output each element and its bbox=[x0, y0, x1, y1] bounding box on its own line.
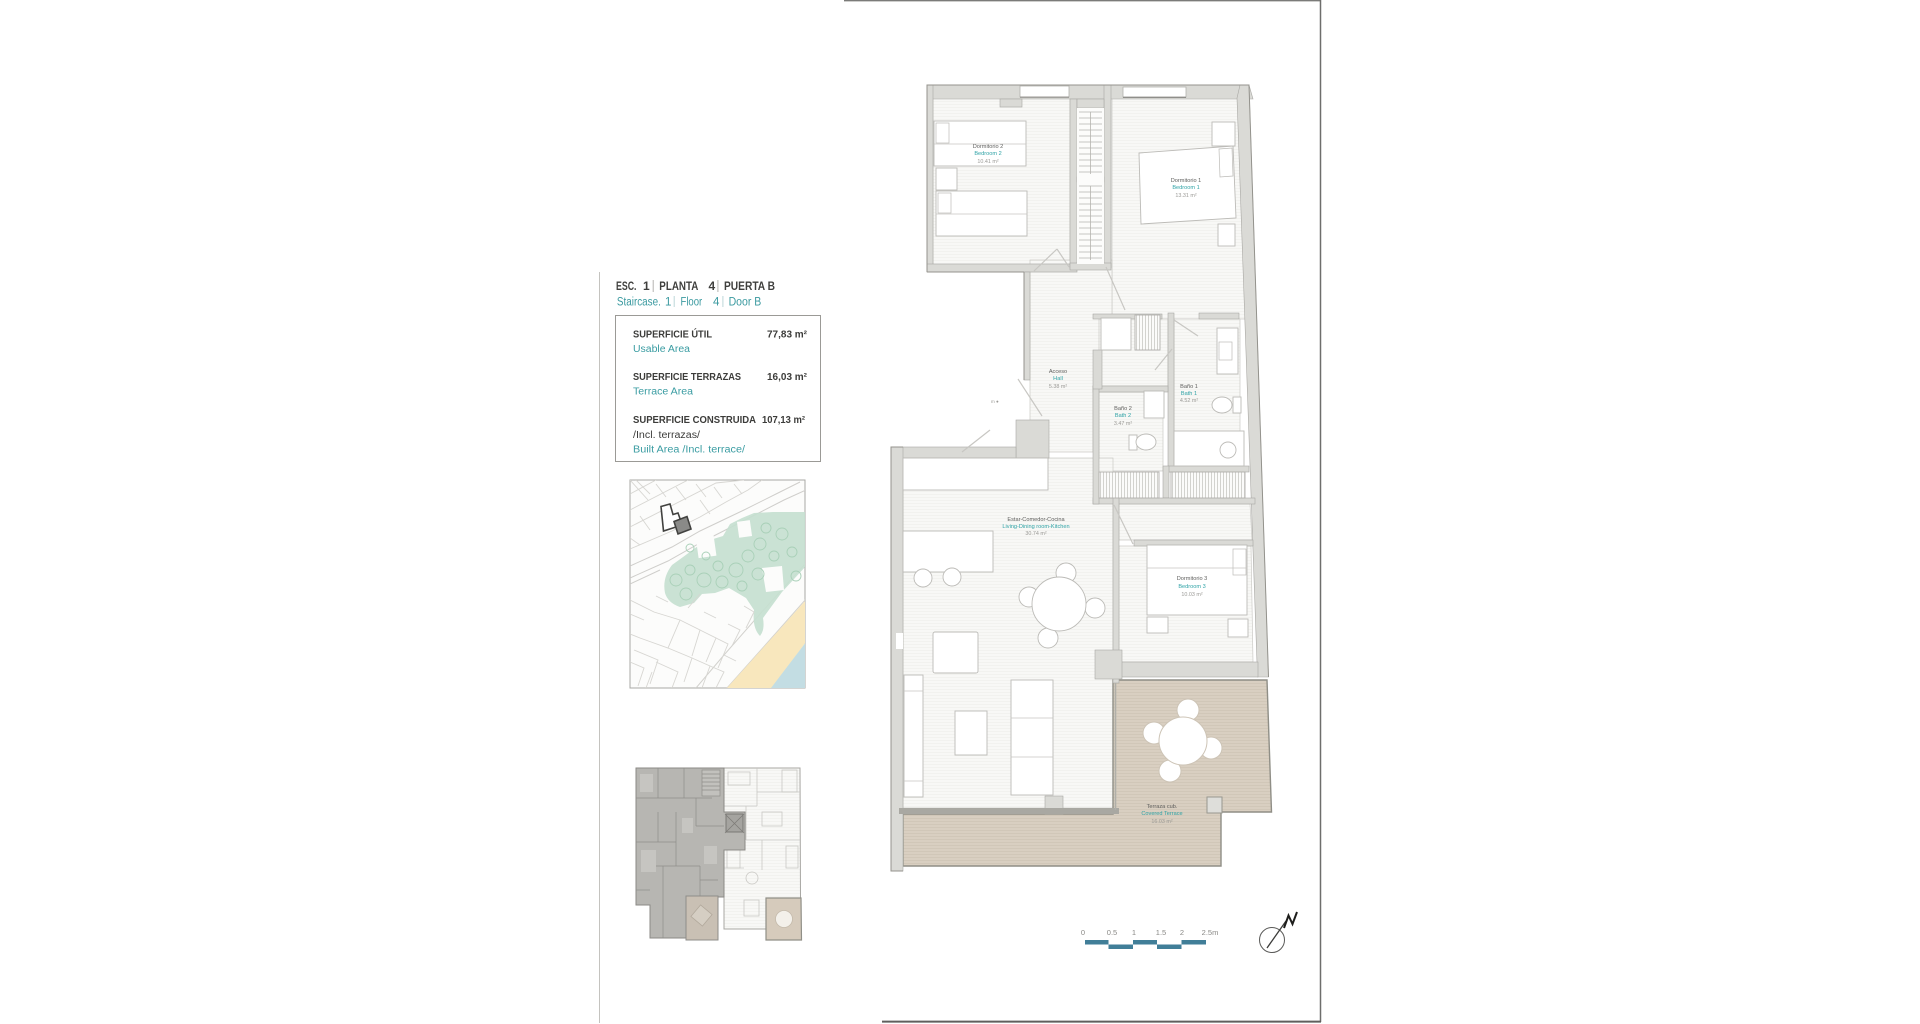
svg-text:Dormitorio 2: Dormitorio 2 bbox=[973, 144, 1003, 150]
svg-text:2.5m: 2.5m bbox=[1202, 928, 1219, 937]
svg-text:Baño 2: Baño 2 bbox=[1114, 406, 1132, 412]
svg-text:Living-Dining room-Kitchen: Living-Dining room-Kitchen bbox=[1002, 524, 1069, 530]
svg-text:16,03 m²: 16,03 m² bbox=[767, 372, 808, 383]
svg-text:0: 0 bbox=[1081, 928, 1085, 937]
svg-text:3.47 m²: 3.47 m² bbox=[1114, 421, 1132, 427]
svg-text:m ●: m ● bbox=[991, 399, 999, 404]
svg-text:4: 4 bbox=[713, 297, 720, 309]
svg-text:4: 4 bbox=[709, 279, 716, 293]
svg-text:Door B: Door B bbox=[729, 297, 762, 309]
svg-text:PUERTA B: PUERTA B bbox=[724, 279, 775, 293]
svg-text:Covered Terrace: Covered Terrace bbox=[1141, 811, 1182, 817]
svg-text:PLANTA: PLANTA bbox=[659, 279, 698, 293]
svg-text:Built Area /Incl. terrace/: Built Area /Incl. terrace/ bbox=[633, 445, 745, 456]
svg-text:4.52 m²: 4.52 m² bbox=[1180, 398, 1198, 404]
svg-text:107,13 m²: 107,13 m² bbox=[762, 415, 806, 426]
svg-text:Dormitorio 3: Dormitorio 3 bbox=[1177, 576, 1207, 582]
svg-text:Bedroom 1: Bedroom 1 bbox=[1172, 185, 1199, 191]
svg-text:1: 1 bbox=[1132, 928, 1136, 937]
svg-text:13.31 m²: 13.31 m² bbox=[1175, 193, 1196, 199]
svg-text:1: 1 bbox=[643, 279, 650, 293]
svg-text:Hall: Hall bbox=[1053, 376, 1063, 382]
svg-text:1: 1 bbox=[665, 297, 671, 309]
svg-text:5.38 m²: 5.38 m² bbox=[1049, 384, 1067, 390]
svg-text:Staircase.: Staircase. bbox=[617, 297, 661, 309]
svg-text:Terrace Area: Terrace Area bbox=[633, 387, 694, 398]
svg-text:30.74 m²: 30.74 m² bbox=[1025, 531, 1046, 537]
svg-text:SUPERFICIE ÚTIL: SUPERFICIE ÚTIL bbox=[633, 329, 712, 341]
svg-text:77,83 m²: 77,83 m² bbox=[767, 330, 808, 341]
svg-text:Bath 2: Bath 2 bbox=[1115, 413, 1131, 419]
svg-text:Bedroom 2: Bedroom 2 bbox=[974, 151, 1001, 157]
svg-text:Bath 1: Bath 1 bbox=[1181, 391, 1197, 397]
svg-text:0.5: 0.5 bbox=[1107, 928, 1117, 937]
svg-text:10.41 m²: 10.41 m² bbox=[977, 159, 998, 165]
svg-text:Estar-Comedor-Cocina: Estar-Comedor-Cocina bbox=[1007, 517, 1065, 523]
svg-text:2: 2 bbox=[1180, 928, 1184, 937]
svg-text:1.5: 1.5 bbox=[1156, 928, 1166, 937]
svg-text:10.03 m²: 10.03 m² bbox=[1181, 592, 1202, 598]
svg-text:SUPERFICIE CONSTRUIDA: SUPERFICIE CONSTRUIDA bbox=[633, 415, 756, 426]
svg-text:Acceso: Acceso bbox=[1049, 369, 1067, 375]
svg-text:/Incl. terrazas/: /Incl. terrazas/ bbox=[633, 430, 700, 441]
svg-text:16.03 m²: 16.03 m² bbox=[1151, 819, 1172, 825]
svg-text:Usable Area: Usable Area bbox=[633, 344, 691, 355]
svg-text:Bedroom 3: Bedroom 3 bbox=[1178, 584, 1205, 590]
svg-text:Floor: Floor bbox=[681, 297, 703, 309]
svg-text:ESC.: ESC. bbox=[616, 279, 637, 293]
svg-text:Terraza cub.: Terraza cub. bbox=[1147, 804, 1178, 810]
svg-text:Dormitorio 1: Dormitorio 1 bbox=[1171, 178, 1201, 184]
svg-text:SUPERFICIE TERRAZAS: SUPERFICIE TERRAZAS bbox=[633, 372, 741, 383]
svg-text:Baño 1: Baño 1 bbox=[1180, 384, 1198, 390]
